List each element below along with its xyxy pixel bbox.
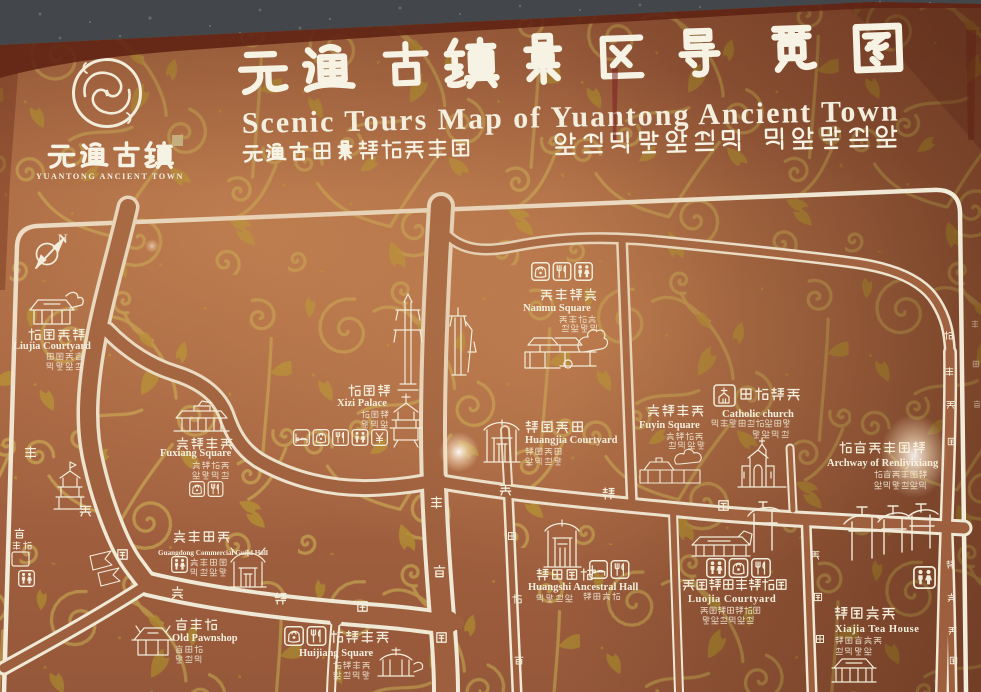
svg-text:Nanmu Square: Nanmu Square [523,303,591,314]
svg-text:Huangjia Courtyard: Huangjia Courtyard [525,435,618,446]
svg-text:Old Pawnshop: Old Pawnshop [172,633,238,644]
svg-text:Huangshi Ancestral Hall: Huangshi Ancestral Hall [528,582,638,593]
svg-text:N: N [58,231,68,246]
svg-text:Xizi Palace: Xizi Palace [337,398,387,409]
svg-text:Huijiang Square: Huijiang Square [299,648,374,659]
svg-text:Xiajia Tea House: Xiajia Tea House [835,624,919,635]
svg-text:Catholic church: Catholic church [722,409,794,420]
svg-text:Liujia Courtyard: Liujia Courtyard [13,341,91,352]
svg-text:Fuyin Square: Fuyin Square [639,420,700,431]
svg-text:Fuxiang Square: Fuxiang Square [160,448,232,459]
svg-text:Luojia Courtyard: Luojia Courtyard [688,594,776,605]
svg-text:YUANTONG ANCIENT TOWN: YUANTONG ANCIENT TOWN [36,172,184,181]
